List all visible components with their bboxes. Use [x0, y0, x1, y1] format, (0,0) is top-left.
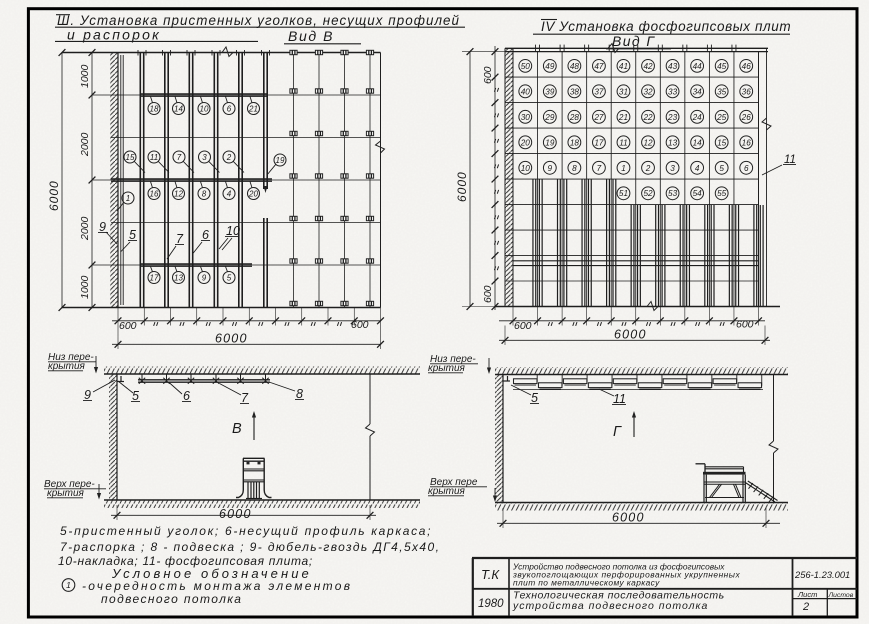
- svg-text:6: 6: [227, 104, 232, 113]
- svg-text:42: 42: [643, 62, 653, 71]
- svg-text:7: 7: [176, 232, 184, 246]
- svg-text:600: 600: [119, 320, 137, 332]
- svg-text:41: 41: [619, 62, 628, 71]
- svg-text:10: 10: [521, 164, 531, 173]
- svg-text:6: 6: [183, 389, 190, 403]
- svg-text:32: 32: [643, 87, 653, 96]
- svg-text:3: 3: [202, 153, 207, 162]
- svg-text:Лист: Лист: [797, 590, 817, 599]
- svg-text:устройства подвесного потол: устройства подвесного потолка: [512, 600, 708, 612]
- svg-text:-очередность монтажа элемент: -очередность монтажа элементов: [82, 579, 352, 593]
- svg-text:1000: 1000: [79, 64, 91, 88]
- svg-text:49: 49: [545, 62, 555, 71]
- svg-text:2000: 2000: [79, 216, 91, 241]
- svg-text:35: 35: [717, 87, 727, 96]
- svg-text:20: 20: [248, 189, 258, 198]
- svg-text:16: 16: [150, 189, 159, 198]
- svg-text:20: 20: [520, 138, 531, 147]
- svg-text:24: 24: [692, 113, 703, 122]
- svg-text:5: 5: [719, 164, 724, 173]
- svg-text:25: 25: [716, 113, 727, 122]
- svg-text:подвесного потолка: подвесного потолка: [101, 592, 242, 606]
- svg-text:9: 9: [548, 164, 553, 173]
- svg-text:17: 17: [594, 138, 604, 147]
- svg-text:4: 4: [227, 189, 232, 198]
- svg-text:18: 18: [570, 138, 580, 147]
- svg-text:37: 37: [594, 87, 604, 96]
- svg-text:23: 23: [667, 113, 678, 122]
- svg-text:2000: 2000: [79, 132, 91, 157]
- svg-text:2: 2: [802, 601, 809, 613]
- svg-text:9: 9: [99, 220, 106, 234]
- svg-text:5-пристенный уголок; 6-несущ: 5-пристенный уголок; 6-несущий профиль к…: [60, 524, 432, 538]
- svg-text:6000: 6000: [614, 328, 647, 342]
- svg-text:3: 3: [670, 164, 675, 173]
- svg-text:46: 46: [742, 62, 752, 71]
- svg-text:27: 27: [593, 113, 604, 122]
- svg-text:21: 21: [618, 113, 628, 122]
- svg-text:плит по металлическому каркасу: плит по металлическому каркасу: [513, 578, 660, 588]
- svg-text:13: 13: [668, 138, 678, 147]
- svg-text:11: 11: [613, 392, 626, 406]
- svg-text:крытия: крытия: [428, 363, 466, 374]
- svg-text:8: 8: [296, 387, 303, 401]
- svg-text:31: 31: [619, 87, 628, 96]
- svg-text:39: 39: [545, 87, 555, 96]
- svg-text:1: 1: [126, 194, 130, 203]
- svg-text:38: 38: [570, 87, 580, 96]
- svg-text:12: 12: [174, 189, 183, 198]
- svg-text:14: 14: [693, 138, 703, 147]
- svg-text:47: 47: [594, 62, 604, 71]
- svg-text:7: 7: [177, 153, 182, 162]
- svg-text:30: 30: [521, 113, 531, 122]
- svg-text:Вид В: Вид В: [288, 28, 334, 44]
- svg-text:18: 18: [150, 104, 159, 113]
- svg-text:21: 21: [248, 104, 258, 113]
- svg-text:5: 5: [227, 273, 232, 282]
- svg-text:9: 9: [202, 273, 207, 282]
- svg-text:крытия: крытия: [47, 488, 85, 499]
- svg-text:43: 43: [668, 62, 678, 71]
- svg-text:6: 6: [744, 164, 749, 173]
- svg-text:4: 4: [695, 164, 700, 173]
- svg-text:6: 6: [202, 228, 209, 242]
- svg-text:48: 48: [570, 62, 580, 71]
- svg-text:7-распорка ; 8 - подвеска ; 9-: 7-распорка ; 8 - подвеска ; 9- дюбель-гв…: [60, 540, 440, 554]
- svg-text:1: 1: [621, 164, 626, 173]
- svg-text:256-1.23.001: 256-1.23.001: [794, 569, 850, 580]
- svg-text:40: 40: [521, 87, 531, 96]
- svg-text:Листов: Листов: [828, 592, 854, 599]
- svg-text:45: 45: [717, 62, 727, 71]
- svg-text:10: 10: [226, 224, 240, 238]
- svg-text:600: 600: [736, 319, 754, 331]
- svg-text:7: 7: [241, 391, 249, 405]
- svg-text:1980: 1980: [478, 598, 504, 610]
- svg-text:28: 28: [569, 113, 580, 122]
- svg-text:IV Установка фосфогипсовых пли: IV Установка фосфогипсовых плит: [541, 19, 791, 34]
- svg-text:6000: 6000: [215, 332, 248, 346]
- svg-text:В: В: [232, 421, 242, 437]
- svg-text:44: 44: [693, 62, 703, 71]
- svg-text:29: 29: [544, 113, 555, 122]
- svg-text:5: 5: [132, 389, 139, 403]
- svg-text:8: 8: [202, 189, 207, 198]
- svg-text:5: 5: [129, 228, 136, 242]
- svg-text:600: 600: [351, 319, 369, 331]
- svg-text:9: 9: [84, 388, 91, 402]
- svg-text:19: 19: [545, 138, 555, 147]
- svg-text:8: 8: [572, 164, 577, 173]
- svg-text:11: 11: [619, 138, 628, 147]
- svg-text:14: 14: [174, 104, 183, 113]
- svg-text:17: 17: [150, 273, 159, 282]
- svg-text:Г: Г: [613, 424, 622, 440]
- svg-text:крытия: крытия: [428, 486, 466, 497]
- svg-text:11: 11: [150, 153, 158, 162]
- svg-text:крытия: крытия: [48, 361, 86, 372]
- svg-text:6000: 6000: [219, 507, 252, 521]
- svg-text:19: 19: [276, 156, 285, 165]
- svg-text:600: 600: [482, 285, 494, 303]
- svg-text:50: 50: [521, 62, 531, 71]
- svg-text:13: 13: [174, 273, 183, 282]
- svg-text:6000: 6000: [612, 511, 645, 525]
- svg-text:и распорок: и распорок: [67, 27, 161, 43]
- svg-text:10: 10: [200, 104, 209, 113]
- svg-text:5: 5: [531, 391, 538, 405]
- svg-text:6000: 6000: [47, 180, 61, 211]
- svg-text:22: 22: [642, 113, 653, 122]
- svg-text:16: 16: [742, 138, 752, 147]
- svg-text:1000: 1000: [79, 275, 91, 299]
- svg-text:15: 15: [126, 153, 135, 162]
- svg-text:15: 15: [717, 138, 727, 147]
- svg-text:600: 600: [514, 320, 532, 332]
- svg-text:36: 36: [742, 87, 752, 96]
- svg-text:12: 12: [643, 138, 653, 147]
- svg-text:55: 55: [717, 189, 727, 198]
- svg-text:600: 600: [482, 66, 494, 84]
- svg-text:52: 52: [643, 189, 653, 198]
- svg-text:2: 2: [226, 153, 232, 162]
- svg-text:7: 7: [597, 164, 602, 173]
- svg-text:54: 54: [693, 189, 703, 198]
- svg-text:26: 26: [741, 113, 752, 122]
- svg-text:2: 2: [645, 164, 651, 173]
- svg-text:1: 1: [66, 580, 71, 590]
- svg-text:34: 34: [693, 87, 703, 96]
- svg-text:51: 51: [619, 189, 628, 198]
- svg-text:53: 53: [668, 189, 678, 198]
- svg-text:6000: 6000: [455, 171, 469, 202]
- svg-text:33: 33: [668, 87, 678, 96]
- svg-text:Т.К: Т.К: [481, 567, 500, 582]
